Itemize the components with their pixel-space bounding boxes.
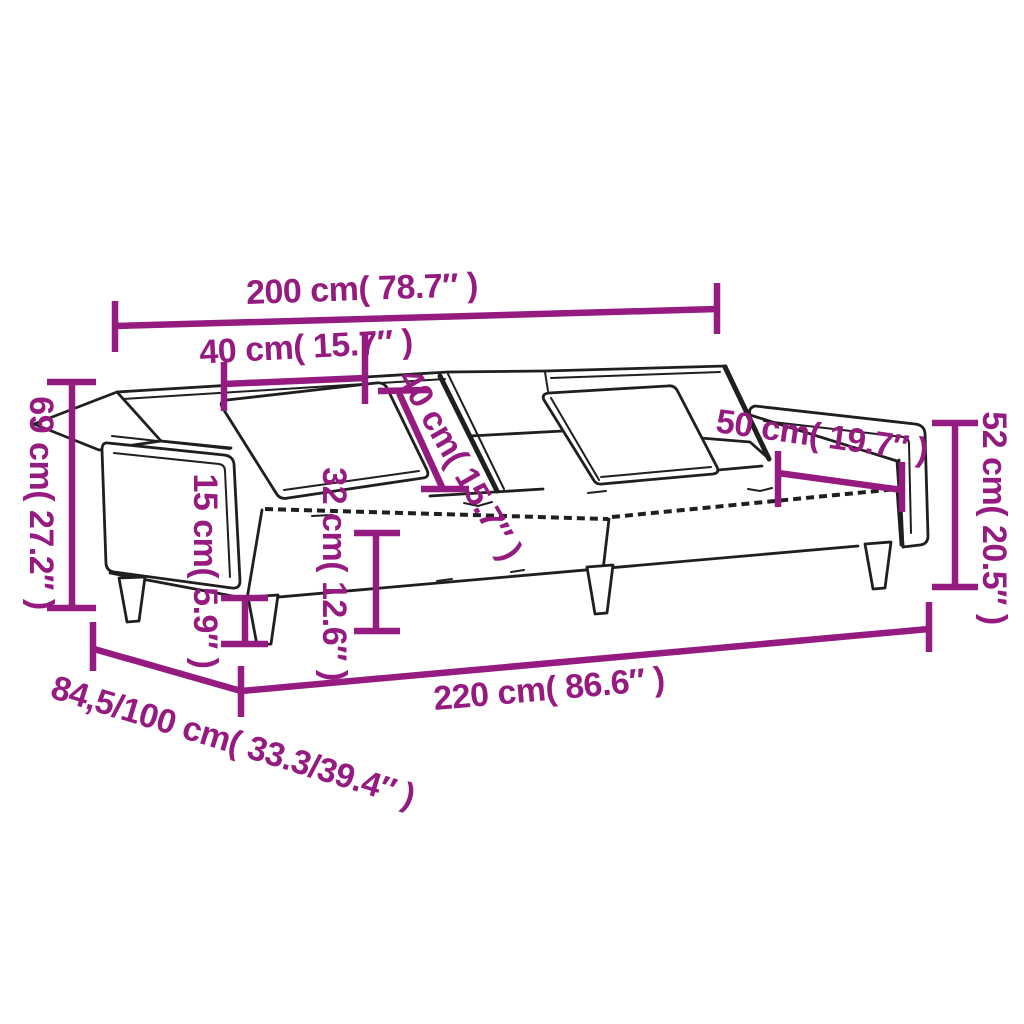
backrest-seam-middle xyxy=(470,431,563,436)
dimension-depth-84: 84,5/100 cm( 33.3/39.4″ ) xyxy=(47,622,420,815)
dimension-back-52: 52 cm( 20.5″ ) xyxy=(932,411,1013,624)
dimension-label: 32 cm( 12.6″ ) xyxy=(315,467,353,680)
seat-tuft-mark-3 xyxy=(588,491,606,493)
dimension-label: 52 cm( 20.5″ ) xyxy=(975,411,1013,624)
sofa-leg-front-right xyxy=(865,542,891,589)
dimension-line xyxy=(354,533,400,631)
frame-notch-2 xyxy=(511,570,524,572)
sofa-leg-front-middle xyxy=(587,565,613,614)
dimension-label: 40 cm( 15.7″ ) xyxy=(198,322,413,371)
seat-front-left-edge xyxy=(247,510,262,599)
seat-split-line xyxy=(603,519,609,570)
sofa-leg-front-left xyxy=(248,595,278,645)
seat-piping-right xyxy=(612,489,897,517)
seat-tuft-mark-4 xyxy=(748,488,772,491)
dimension-label: 200 cm( 78.7″ ) xyxy=(245,266,478,312)
dimension-label: 69 cm( 27.2″ ) xyxy=(22,396,60,609)
dimension-label: 15 cm( 5.9″ ) xyxy=(186,474,224,669)
dimension-seat-32: 32 cm( 12.6″ ) xyxy=(315,467,400,680)
diagram-canvas: 200 cm( 78.7″ ) 40 cm( 15.7″ ) 40 cm( 15… xyxy=(0,0,1024,1024)
backrest-top-inner-right xyxy=(551,372,720,378)
sofa-leg-rear-left xyxy=(119,577,145,622)
seat-rear-edge-right xyxy=(718,466,762,470)
backrest-split-middle xyxy=(545,372,548,391)
sofa-dimension-diagram: 200 cm( 78.7″ ) 40 cm( 15.7″ ) 40 cm( 15… xyxy=(0,0,1024,1024)
dimension-line xyxy=(932,423,978,587)
